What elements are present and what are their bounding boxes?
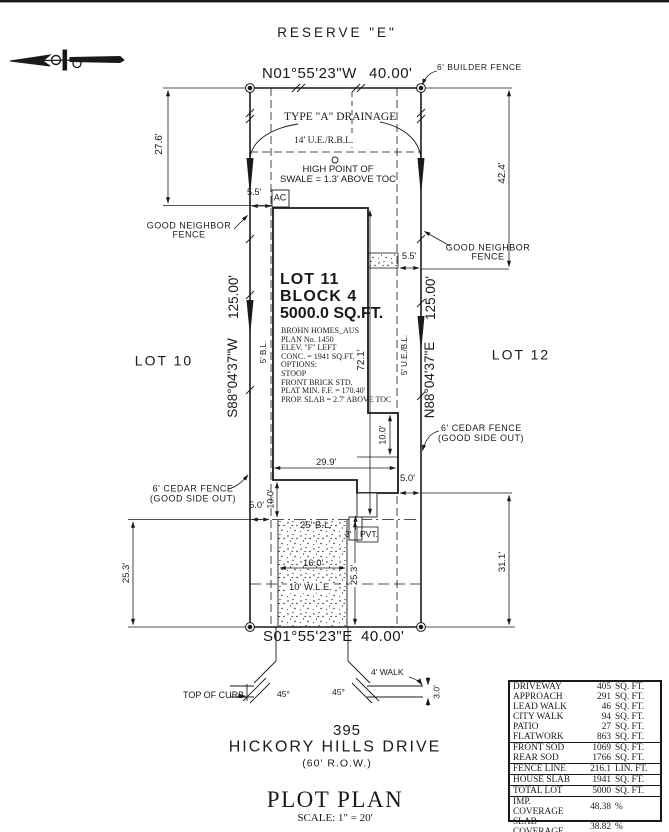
table-row: IMP. COVERAGE48.38% [510, 797, 660, 817]
row-unit: SQ. FT. [611, 743, 657, 753]
address-number: 395 [333, 723, 361, 739]
row-value: 863 [577, 732, 611, 742]
good-neighbor-left-leader [234, 216, 248, 230]
pvt-label: PVT. [360, 530, 378, 539]
cedar-right-leader [423, 431, 440, 451]
drainage-note: TYPE "A" DRAINAGE [284, 111, 396, 123]
length-bottom: 40.00' [361, 629, 404, 645]
ac-label: AC [274, 193, 287, 202]
table-row: DRIVEWAY405SQ. FT. [510, 682, 660, 692]
stoop [357, 493, 377, 517]
side-porch [368, 253, 398, 268]
cedar-left-line2: (GOOD SIDE OUT) [150, 494, 236, 503]
row-unit: SQ. FT. [611, 722, 657, 732]
row-value: 291 [577, 692, 611, 702]
row-value: 1069 [577, 743, 611, 753]
row-value: 1941 [577, 775, 611, 785]
table-row: FENCE LINE216.1LIN. FT. [510, 764, 660, 775]
bearing-top: N01°55'23"W [262, 66, 357, 82]
dim-29-9: 29.9' [316, 458, 336, 468]
row-value: 94 [577, 712, 611, 722]
walk-4-label: 4' WALK [371, 668, 404, 677]
table-row: LEAD WALK46SQ. FT. [510, 702, 660, 712]
site-data-table: DRIVEWAY405SQ. FT. APPROACH291SQ. FT. LE… [508, 680, 662, 822]
table-row: SLAB COVERAGE38.82% [510, 817, 660, 832]
wle-10-label: 10' W.L.E. [287, 583, 334, 593]
table-row: FRONT SOD1069SQ. FT. [510, 743, 660, 753]
dim-31-1: 31.1' [498, 552, 508, 572]
row-unit: SQ. FT. [611, 702, 657, 712]
lot-details: BROHN HOMES_AUS PLAN No. 1450 ELEV. "F" … [281, 327, 391, 404]
table-row: TOTAL LOT5000SQ. FT. [510, 786, 660, 797]
sheet-border-top [0, 0, 669, 2]
row-value: 216.1 [577, 764, 611, 774]
sheet-title: PLOT PLAN [267, 788, 403, 812]
table-row: FLATWORK863SQ. FT. [510, 732, 660, 743]
ue-rbl-label: 14' U.E./R.B.L. [292, 137, 355, 147]
dim-72-1: 72.1' [357, 349, 368, 370]
good-neighbor-right-line2: FENCE [471, 252, 504, 261]
row-unit: LIN. FT. [611, 764, 657, 774]
row-label: DRIVEWAY [513, 682, 577, 692]
row-unit: SQ. FT. [611, 692, 657, 702]
bearing-bottom: S01°55'23"E [263, 629, 353, 645]
ue-bl-5-label: 5' U.E./B.L. [401, 335, 409, 375]
row-unit: SQ. FT. [611, 786, 657, 796]
high-point-marker [332, 157, 338, 163]
lot-12-label: LOT 12 [492, 348, 550, 363]
bearing-right: N88°04'37"E [423, 342, 437, 419]
dim-5-5-right: 5.5' [402, 252, 416, 261]
table-row: APPROACH291SQ. FT. [510, 692, 660, 702]
row-label: PATIO [513, 722, 577, 732]
length-left: 125.00' [227, 275, 241, 319]
dim-10-0-left: 10.0' [266, 489, 275, 508]
row-label: LEAD WALK [513, 702, 577, 712]
high-point-line2: SWALE = 1.3' ABOVE TOC [280, 175, 396, 185]
bl-5-label: 5' B.L. [260, 341, 268, 363]
row-label: HOUSE SLAB [513, 775, 577, 785]
detail-line: PROP. SLAB = 2.7' ABOVE TOC [281, 396, 391, 405]
good-neighbor-left-line2: FENCE [172, 230, 205, 239]
dim-5-5-top: 5.5' [247, 188, 261, 197]
row-label: FRONT SOD [513, 743, 577, 753]
lot-10-label: LOT 10 [135, 354, 193, 369]
row-value: 27 [577, 722, 611, 732]
dim-27-6: 27.6' [155, 133, 166, 154]
row-unit: SQ. FT. [611, 712, 657, 722]
lot-block: BLOCK 4 [280, 289, 357, 306]
row-unit: SQ. FT. [611, 682, 657, 692]
plot-plan-sheet: RESERVE "E" N01°55'23"W 40.00' 6' BUILDE… [0, 0, 669, 832]
row-value: 5000 [577, 786, 611, 796]
sheet-scale: SCALE: 1" = 20' [297, 813, 372, 825]
bl-25-label: 25' B.L. [300, 521, 332, 531]
row-value: 405 [577, 682, 611, 692]
address-row: (60' R.O.W.) [302, 758, 371, 769]
row-value: 38.82 [577, 822, 611, 832]
dim-25-3-mid: 25.3' [350, 563, 360, 587]
bearing-left: S88°04'37"W [226, 338, 240, 418]
address-street: HICKORY HILLS DRIVE [229, 740, 442, 757]
angle-45-left: 45° [277, 690, 290, 699]
north-arrow-icon [10, 50, 124, 70]
row-unit: % [611, 822, 657, 832]
table-row: HOUSE SLAB1941SQ. FT. [510, 775, 660, 786]
length-right: 125.00' [424, 276, 438, 320]
row-unit: SQ. FT. [611, 775, 657, 785]
table-row: PATIO27SQ. FT. [510, 722, 660, 732]
dim-10-0-right: 10.0' [378, 425, 387, 444]
row-unit: SQ. FT. [611, 732, 657, 742]
row-label: FLATWORK [513, 732, 577, 742]
row-label: IMP. COVERAGE [513, 797, 577, 817]
dim-16-0: 16.0' [303, 559, 323, 569]
row-label: SLAB COVERAGE [513, 817, 577, 832]
row-value: 1766 [577, 753, 611, 763]
dim-5-0-left: 5.0' [249, 501, 264, 511]
table-row: REAR SOD1766SQ. FT. [510, 753, 660, 764]
row-label: FENCE LINE [513, 764, 577, 774]
table-row: CITY WALK94SQ. FT. [510, 712, 660, 722]
row-value: 48.38 [577, 802, 611, 812]
city-walk [230, 677, 428, 706]
row-label: APPROACH [513, 692, 577, 702]
walk-leader [409, 677, 422, 685]
length-top: 40.00' [369, 66, 412, 82]
dim-5-0-right: 5.0' [400, 474, 415, 484]
row-value: 46 [577, 702, 611, 712]
row-unit: % [611, 802, 657, 812]
lot-number: LOT 11 [280, 272, 339, 289]
curb-chevron-right [352, 678, 379, 703]
row-unit: SQ. FT. [611, 753, 657, 763]
dim-42-4: 42.4' [498, 162, 509, 183]
builder-fence-leader [423, 71, 438, 85]
row-label: TOTAL LOT [513, 786, 577, 796]
dim-25-3-left: 25.3' [122, 563, 132, 583]
angle-45-right: 45° [332, 688, 345, 697]
reserve-label: RESERVE "E" [277, 26, 397, 40]
cedar-right-line2: (GOOD SIDE OUT) [438, 434, 524, 443]
row-label: REAR SOD [513, 753, 577, 763]
row-label: CITY WALK [513, 712, 577, 722]
lot-area: 5000.0 SQ.FT. [280, 306, 383, 323]
top-of-curb-label: TOP OF CURB [183, 691, 244, 700]
builder-fence-label: 6' BUILDER FENCE [437, 63, 522, 72]
dim-3-0: 3.0' [433, 685, 442, 698]
pvt-3-label: 3' [345, 530, 351, 539]
